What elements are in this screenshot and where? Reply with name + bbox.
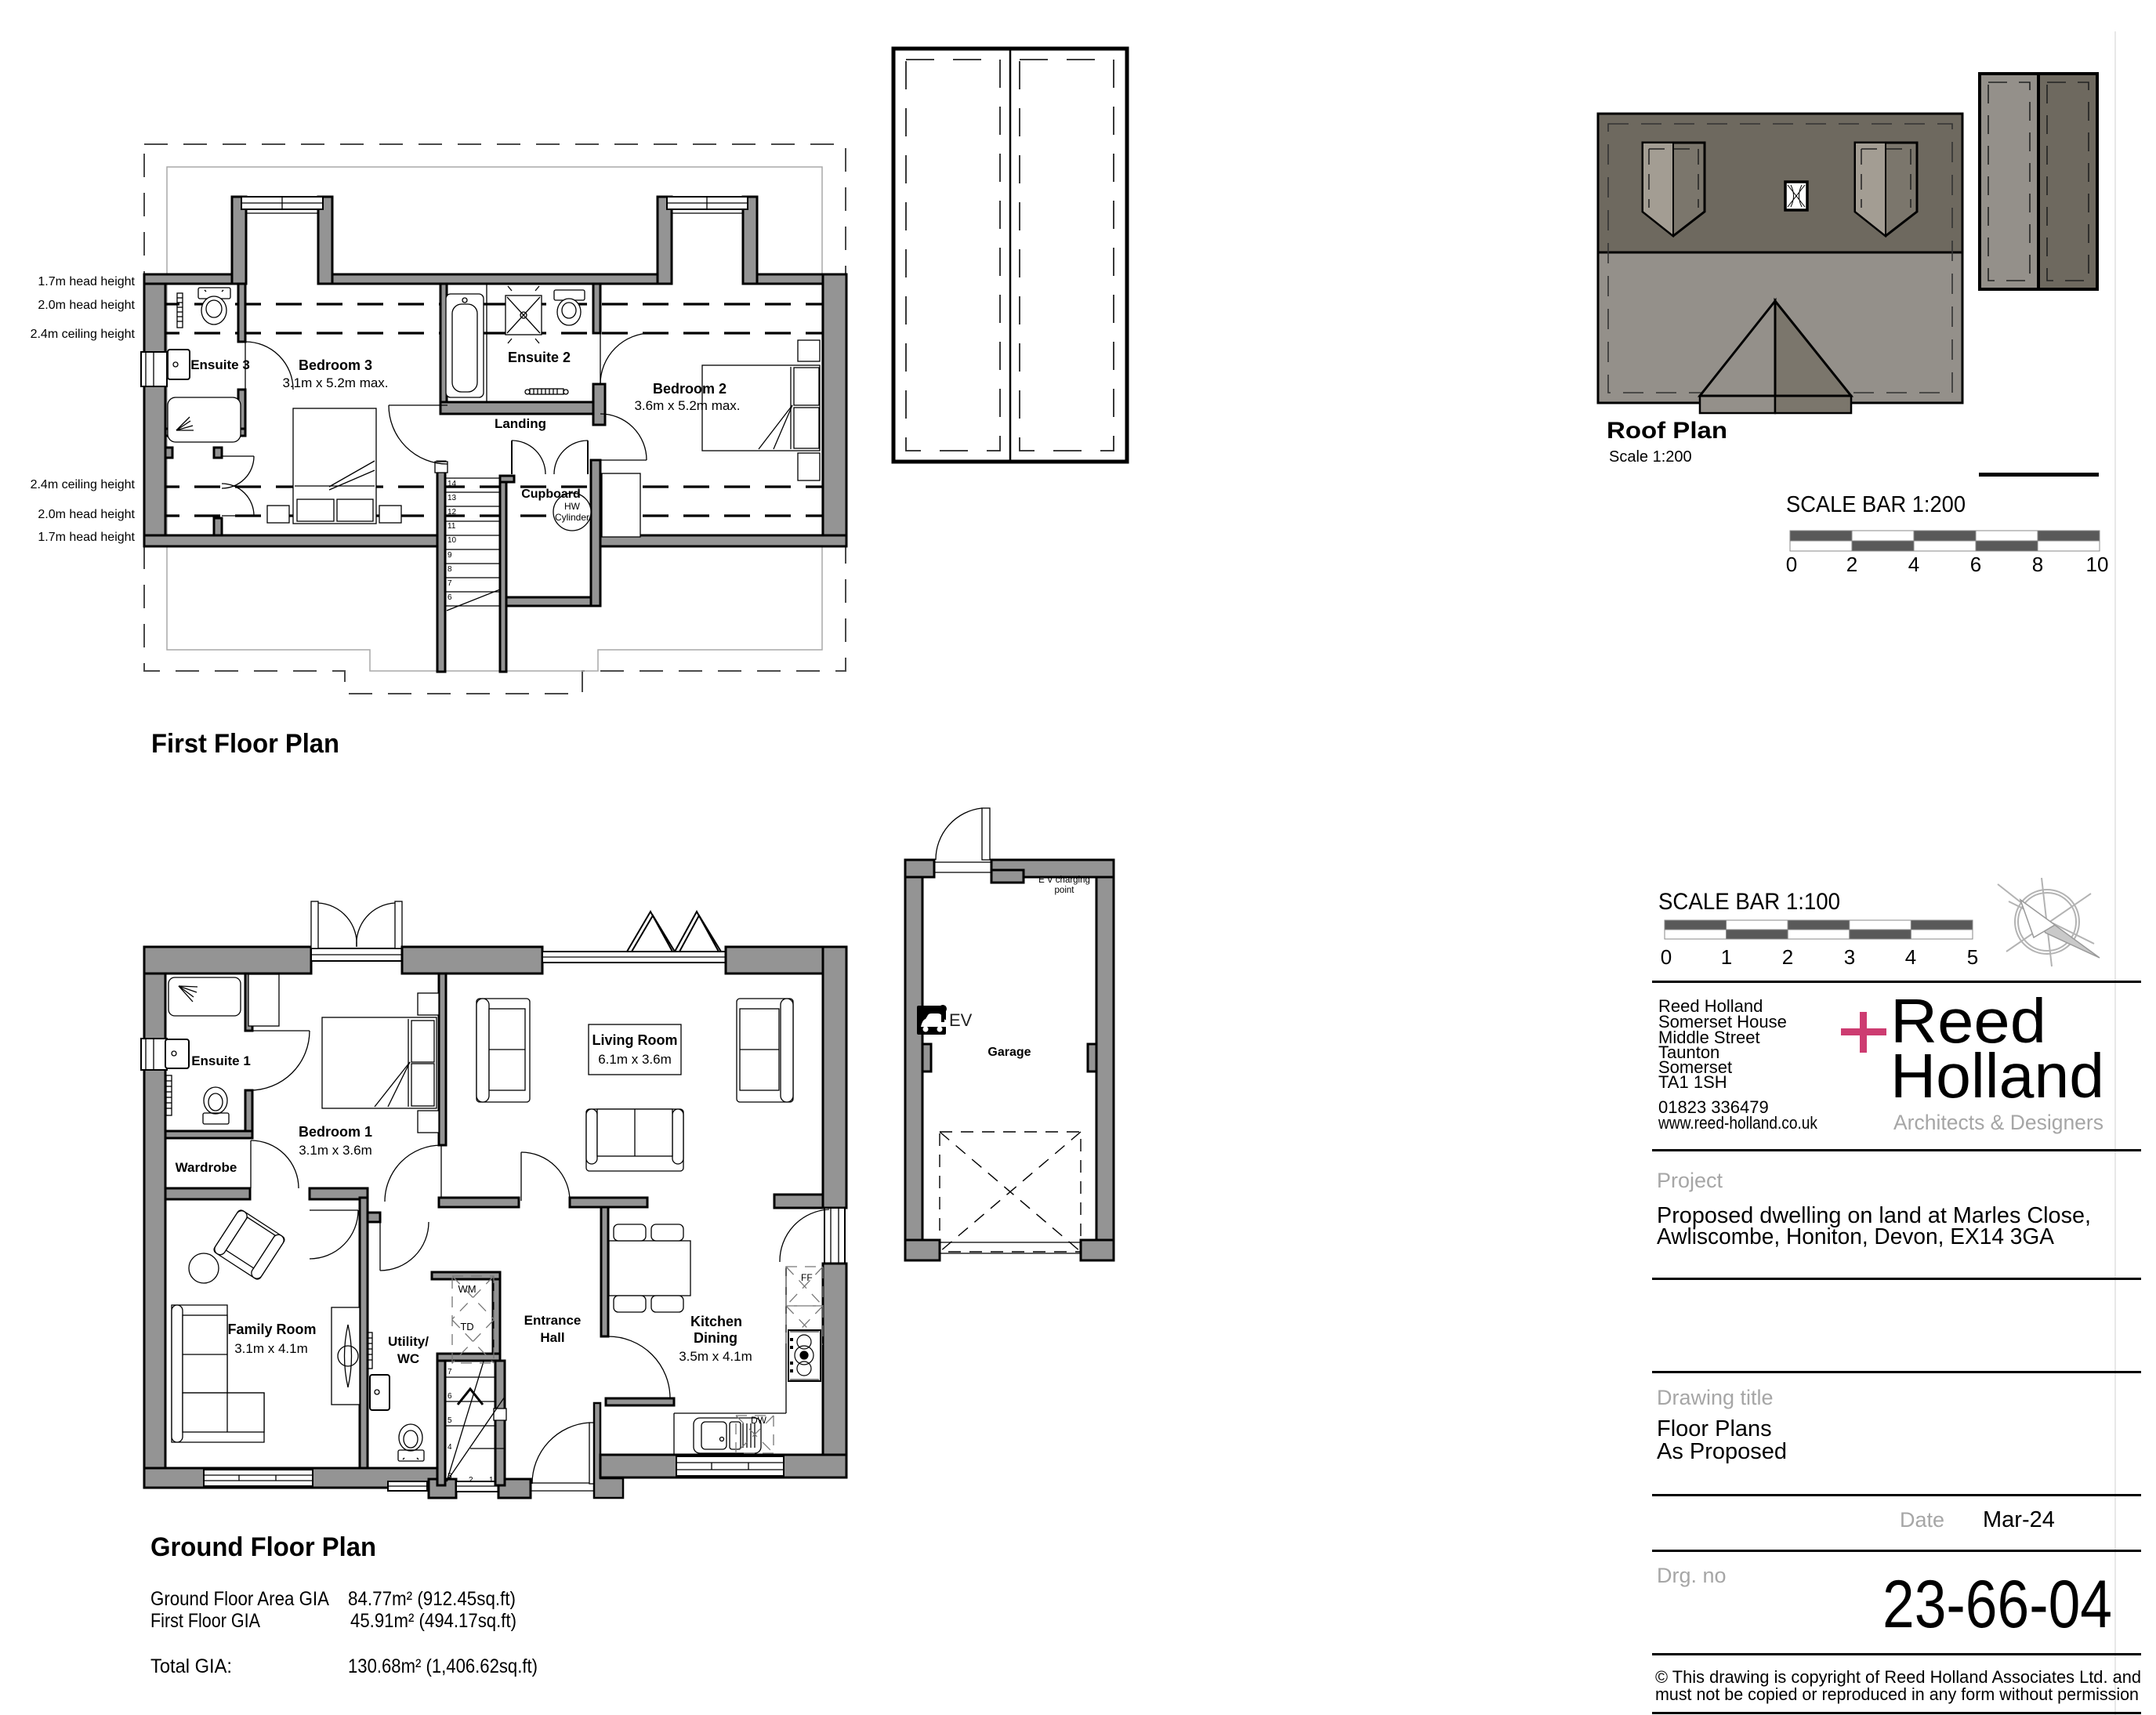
- svg-text:45.91m² (494.17sq.ft): 45.91m² (494.17sq.ft): [350, 1610, 516, 1632]
- svg-text:Utility/: Utility/: [388, 1334, 429, 1349]
- svg-text:Awliscombe, Honiton, Devon, EX: Awliscombe, Honiton, Devon, EX14 3GA: [1657, 1224, 2055, 1249]
- svg-text:Cylinder: Cylinder: [555, 512, 589, 523]
- svg-text:Ensuite 2: Ensuite 2: [508, 350, 571, 365]
- svg-text:6: 6: [448, 593, 452, 602]
- svg-text:3: 3: [448, 1472, 452, 1481]
- svg-text:Total GIA:: Total GIA:: [150, 1655, 232, 1677]
- svg-text:2.0m head height: 2.0m head height: [38, 508, 135, 521]
- svg-text:3.6m x 5.2m max.: 3.6m x 5.2m max.: [634, 398, 740, 413]
- svg-text:4: 4: [1908, 553, 1919, 576]
- svg-text:3.1m x 3.6m: 3.1m x 3.6m: [299, 1143, 372, 1158]
- svg-text:11: 11: [448, 522, 456, 531]
- svg-text:14: 14: [448, 480, 457, 488]
- svg-text:DW: DW: [751, 1415, 767, 1426]
- svg-text:Cupboard: Cupboard: [521, 488, 581, 501]
- svg-text:Drawing title: Drawing title: [1657, 1386, 1774, 1409]
- svg-text:6: 6: [448, 1392, 452, 1401]
- svg-text:2: 2: [469, 1476, 473, 1485]
- svg-text:5: 5: [448, 1416, 452, 1425]
- svg-text:84.77m² (912.45sq.ft): 84.77m² (912.45sq.ft): [348, 1588, 516, 1610]
- svg-text:7: 7: [448, 1368, 452, 1376]
- svg-text:WM: WM: [458, 1283, 476, 1295]
- svg-text:Ensuite 3: Ensuite 3: [190, 357, 250, 372]
- svg-text:2: 2: [1846, 553, 1857, 576]
- svg-text:Roof Plan: Roof Plan: [1607, 418, 1727, 444]
- svg-text:1.7m head height: 1.7m head height: [38, 531, 135, 544]
- svg-text:23-66-04: 23-66-04: [1882, 1567, 2112, 1642]
- svg-text:Entrance: Entrance: [524, 1313, 582, 1328]
- svg-text:2.4m ceiling height: 2.4m ceiling height: [31, 478, 136, 491]
- svg-text:Date: Date: [1900, 1508, 1944, 1532]
- svg-text:130.68m² (1,406.62sq.ft): 130.68m² (1,406.62sq.ft): [348, 1655, 538, 1677]
- svg-text:3.1m x 5.2m max.: 3.1m x 5.2m max.: [282, 375, 388, 390]
- svg-text:First Floor GIA: First Floor GIA: [150, 1610, 260, 1632]
- svg-text:must not be copied or reproduc: must not be copied or reproduced in any …: [1655, 1684, 2139, 1704]
- svg-text:3.1m x 4.1m: 3.1m x 4.1m: [234, 1341, 308, 1356]
- svg-text:E V charging: E V charging: [1038, 876, 1090, 885]
- svg-text:1: 1: [1721, 945, 1732, 969]
- svg-text:12: 12: [448, 508, 457, 517]
- svg-text:Dining: Dining: [694, 1330, 737, 1346]
- svg-text:10: 10: [448, 536, 457, 545]
- svg-text:First Floor Plan: First Floor Plan: [151, 729, 339, 759]
- svg-text:Drg. no: Drg. no: [1657, 1564, 1727, 1587]
- svg-text:2.4m ceiling height: 2.4m ceiling height: [31, 328, 136, 341]
- svg-text:9: 9: [448, 551, 452, 560]
- svg-text:Architects & Designers: Architects & Designers: [1893, 1111, 2103, 1134]
- svg-text:FF: FF: [801, 1272, 813, 1283]
- svg-text:8: 8: [448, 565, 452, 574]
- svg-text:1.7m head height: 1.7m head height: [38, 275, 135, 288]
- svg-text:Family Room: Family Room: [227, 1322, 316, 1337]
- svg-text:HW: HW: [564, 501, 581, 512]
- svg-text:Bedroom 2: Bedroom 2: [653, 381, 727, 397]
- svg-text:Kitchen: Kitchen: [690, 1314, 742, 1329]
- svg-text:SCALE BAR 1:100: SCALE BAR 1:100: [1658, 889, 1840, 915]
- svg-text:As Proposed: As Proposed: [1657, 1439, 1787, 1464]
- svg-text:1: 1: [489, 1476, 494, 1485]
- svg-text:SCALE BAR 1:200: SCALE BAR 1:200: [1786, 492, 1966, 517]
- svg-text:0: 0: [1786, 553, 1797, 576]
- svg-text:Ensuite 1: Ensuite 1: [191, 1053, 251, 1068]
- svg-text:Ground Floor Area GIA: Ground Floor Area GIA: [150, 1588, 329, 1610]
- svg-text:3: 3: [1844, 945, 1855, 969]
- svg-text:TA1 1SH: TA1 1SH: [1658, 1072, 1727, 1092]
- svg-text:Scale 1:200: Scale 1:200: [1609, 448, 1692, 466]
- svg-text:Ground Floor Plan: Ground Floor Plan: [150, 1532, 376, 1562]
- svg-text:0: 0: [1661, 945, 1672, 969]
- svg-text:Wardrobe: Wardrobe: [176, 1160, 237, 1175]
- svg-text:Living Room: Living Room: [592, 1032, 678, 1048]
- svg-text:Holland: Holland: [1890, 1041, 2104, 1111]
- svg-text:EV: EV: [949, 1010, 973, 1030]
- svg-text:8: 8: [2032, 553, 2043, 576]
- svg-text:Hall: Hall: [540, 1330, 564, 1345]
- svg-text:6: 6: [1970, 553, 1981, 576]
- svg-text:Bedroom 3: Bedroom 3: [299, 357, 372, 373]
- svg-text:Landing: Landing: [495, 416, 546, 431]
- svg-text:10: 10: [2086, 553, 2109, 576]
- svg-text:Floor Plans: Floor Plans: [1657, 1416, 1772, 1441]
- svg-text:2: 2: [1782, 945, 1793, 969]
- svg-text:6.1m x 3.6m: 6.1m x 3.6m: [598, 1052, 672, 1067]
- svg-text:3.5m x 4.1m: 3.5m x 4.1m: [679, 1349, 752, 1364]
- svg-text:Garage: Garage: [987, 1046, 1031, 1059]
- svg-text:4: 4: [448, 1443, 452, 1452]
- svg-text:4: 4: [1905, 945, 1916, 969]
- svg-text:TD: TD: [460, 1321, 473, 1332]
- svg-text:point: point: [1055, 886, 1075, 895]
- svg-text:www.reed-holland.co.uk: www.reed-holland.co.uk: [1658, 1113, 1818, 1133]
- svg-text:2.0m head height: 2.0m head height: [38, 299, 135, 312]
- svg-text:13: 13: [448, 494, 457, 502]
- svg-text:Bedroom 1: Bedroom 1: [299, 1124, 372, 1140]
- svg-text:7: 7: [448, 579, 452, 588]
- svg-text:Project: Project: [1657, 1169, 1723, 1192]
- svg-text:WC: WC: [397, 1351, 419, 1366]
- svg-text:5: 5: [1967, 945, 1978, 969]
- svg-text:Mar-24: Mar-24: [1983, 1507, 2055, 1532]
